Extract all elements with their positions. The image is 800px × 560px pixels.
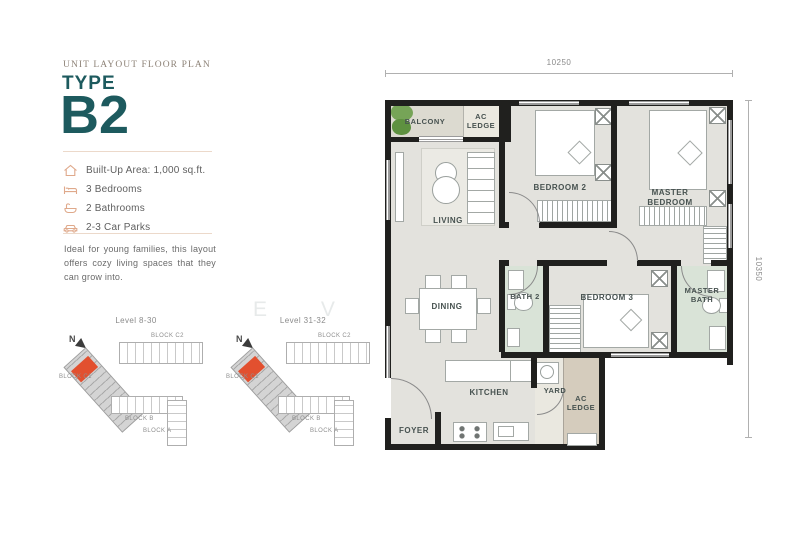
master-wardrobe-side [703, 226, 727, 264]
sitemap-level-31-32: Level 31-32 N BLOCK C2 BLOCK C1 BLOCK B … [222, 312, 384, 450]
room-label-bedroom2: BEDROOM 2 [525, 183, 595, 193]
divider-bottom [63, 233, 212, 234]
block-a-building [167, 400, 187, 446]
block-c1-label: BLOCK C1 [226, 374, 259, 380]
window [728, 204, 732, 248]
house-icon [63, 164, 78, 177]
dimension-right-line [748, 100, 749, 438]
bedroom2-wardrobe [537, 200, 615, 222]
block-b-label: BLOCK B [125, 416, 154, 422]
bedroom2-bedside-unit [595, 164, 612, 181]
block-a-label: BLOCK A [310, 428, 338, 434]
feature-bathrooms: 2 Bathrooms [63, 199, 223, 218]
wall [435, 412, 441, 444]
window [611, 353, 669, 357]
wall [671, 266, 677, 352]
wall [499, 100, 511, 142]
coffee-table [432, 176, 460, 204]
wall [611, 100, 617, 222]
compass-label: N [69, 334, 76, 344]
stove [453, 422, 487, 442]
bedroom3-bedside-unit [651, 332, 668, 349]
kitchen-counter [445, 360, 537, 382]
unit-description: Ideal for young families, this layout of… [64, 243, 216, 285]
block-c2-label: BLOCK C2 [151, 333, 184, 339]
room-label-ac-ledge-bottom: AC LEDGE [565, 394, 597, 412]
balcony-sliding-door [419, 136, 463, 142]
bed-icon [63, 183, 78, 196]
brochure-page: { "watermark": "E V A N S", "header": { … [0, 0, 800, 560]
block-a-building [334, 400, 354, 446]
kitchen-sink-basin [498, 426, 514, 437]
window [728, 120, 732, 184]
feature-built-up-area: Built-Up Area: 1,000 sq.ft. [63, 161, 223, 180]
block-c1-label: BLOCK C1 [59, 374, 92, 380]
window [386, 326, 390, 380]
compass-label: N [236, 334, 243, 344]
bedroom2-bed [535, 110, 595, 176]
wall [463, 137, 499, 142]
services-shaft [549, 305, 581, 354]
dining-chair [451, 275, 467, 289]
room-label-ac-ledge-top: AC LEDGE [465, 112, 497, 130]
master-bedside-unit [709, 190, 726, 207]
wall [599, 358, 605, 450]
dining-chair [425, 329, 441, 343]
sofa [467, 152, 495, 224]
dimension-right-value: 10350 [754, 257, 763, 282]
ac-vent [567, 433, 597, 446]
block-b-label: BLOCK B [292, 416, 321, 422]
wall [539, 222, 617, 228]
master-wardrobe [639, 206, 707, 226]
wall [391, 137, 419, 142]
room-label-master-bath: MASTER BATH [679, 286, 725, 304]
window [629, 101, 689, 105]
room-label-bath2: BATH 2 [505, 292, 545, 301]
block-c2-building [286, 342, 370, 364]
bath-icon [63, 202, 78, 215]
sitemap-level-8-30: Level 8-30 N BLOCK C2 BLOCK C1 BLOCK B B… [55, 312, 217, 450]
wall [543, 266, 549, 352]
dimension-top-value: 10250 [385, 58, 733, 67]
window [386, 160, 390, 220]
window [519, 101, 579, 105]
wall [499, 142, 505, 228]
block-c2-building [119, 342, 203, 364]
feature-text: 3 Bedrooms [86, 184, 142, 195]
tv-console [395, 152, 404, 222]
unit-code: B2 [60, 90, 129, 141]
bedroom3-bedside-unit [651, 270, 668, 287]
feature-car-parks: 2-3 Car Parks [63, 218, 223, 237]
wall [531, 358, 537, 388]
room-label-kitchen: KITCHEN [463, 388, 515, 398]
wall [711, 260, 733, 266]
master-bedside-unit [709, 107, 726, 124]
divider-top [63, 151, 212, 152]
feature-text: 2-3 Car Parks [86, 222, 150, 233]
dimension-right: 10350 [748, 100, 768, 438]
wall [499, 266, 505, 352]
dining-chair [477, 298, 491, 314]
floor-plan: BALCONY AC LEDGE LIVING BEDROOM 2 MASTER… [385, 100, 733, 450]
page-kicker: UNIT LAYOUT FLOOR PLAN [63, 60, 211, 70]
feature-bedrooms: 3 Bedrooms [63, 180, 223, 199]
bedroom2-bedside-unit [595, 108, 612, 125]
room-label-balcony: BALCONY [401, 117, 449, 126]
feature-text: Built-Up Area: 1,000 sq.ft. [86, 165, 205, 176]
feature-list: Built-Up Area: 1,000 sq.ft. 3 Bedrooms 2… [63, 161, 223, 237]
room-label-living: LIVING [423, 216, 473, 226]
level-label: Level 8-30 [75, 316, 197, 325]
washing-machine-drum [540, 365, 554, 379]
room-label-dining: DINING [422, 302, 472, 312]
block-a-label: BLOCK A [143, 428, 171, 434]
dining-chair [405, 298, 419, 314]
room-label-foyer: FOYER [393, 426, 435, 436]
dining-chair [425, 275, 441, 289]
dimension-top: 10250 [385, 58, 733, 74]
feature-text: 2 Bathrooms [86, 203, 145, 214]
bath2-shower-fitting [507, 328, 520, 347]
block-c2-label: BLOCK C2 [318, 333, 351, 339]
level-label: Level 31-32 [242, 316, 364, 325]
master-bath-shower [709, 326, 726, 350]
dimension-top-line [385, 73, 733, 74]
dining-chair [451, 329, 467, 343]
room-label-master-bedroom: MASTER BEDROOM [637, 188, 703, 207]
room-label-bedroom3: BEDROOM 3 [571, 293, 643, 303]
